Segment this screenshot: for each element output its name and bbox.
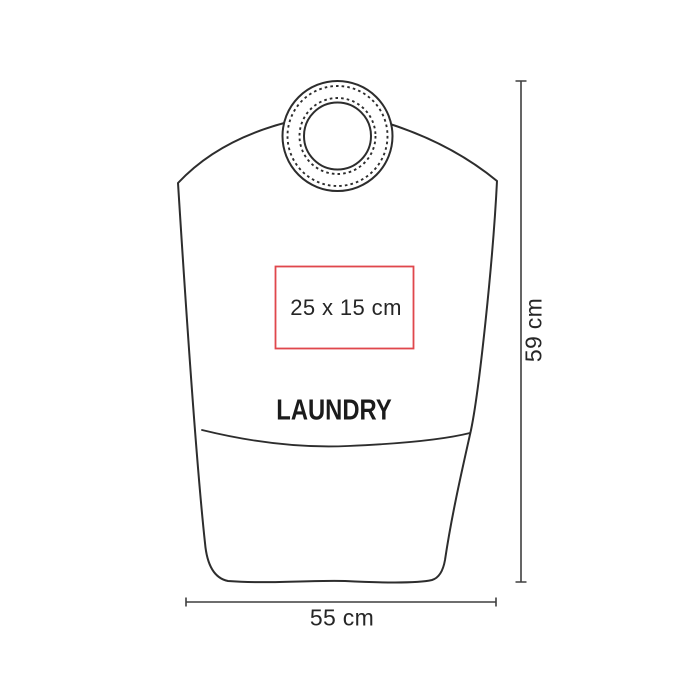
print-area-size-label: 25 x 15 cm: [290, 295, 402, 321]
product-print-text: LAUNDRY: [276, 395, 391, 428]
ring-inner-circle: [304, 103, 371, 170]
width-dimension-label: 55 cm: [310, 605, 374, 632]
laundry-bag-drawing: [0, 0, 700, 700]
product-diagram: 25 x 15 cm LAUNDRY 55 cm 59 cm: [0, 0, 700, 700]
grommet-ring: [283, 81, 393, 191]
height-dimension-label: 59 cm: [521, 298, 548, 362]
